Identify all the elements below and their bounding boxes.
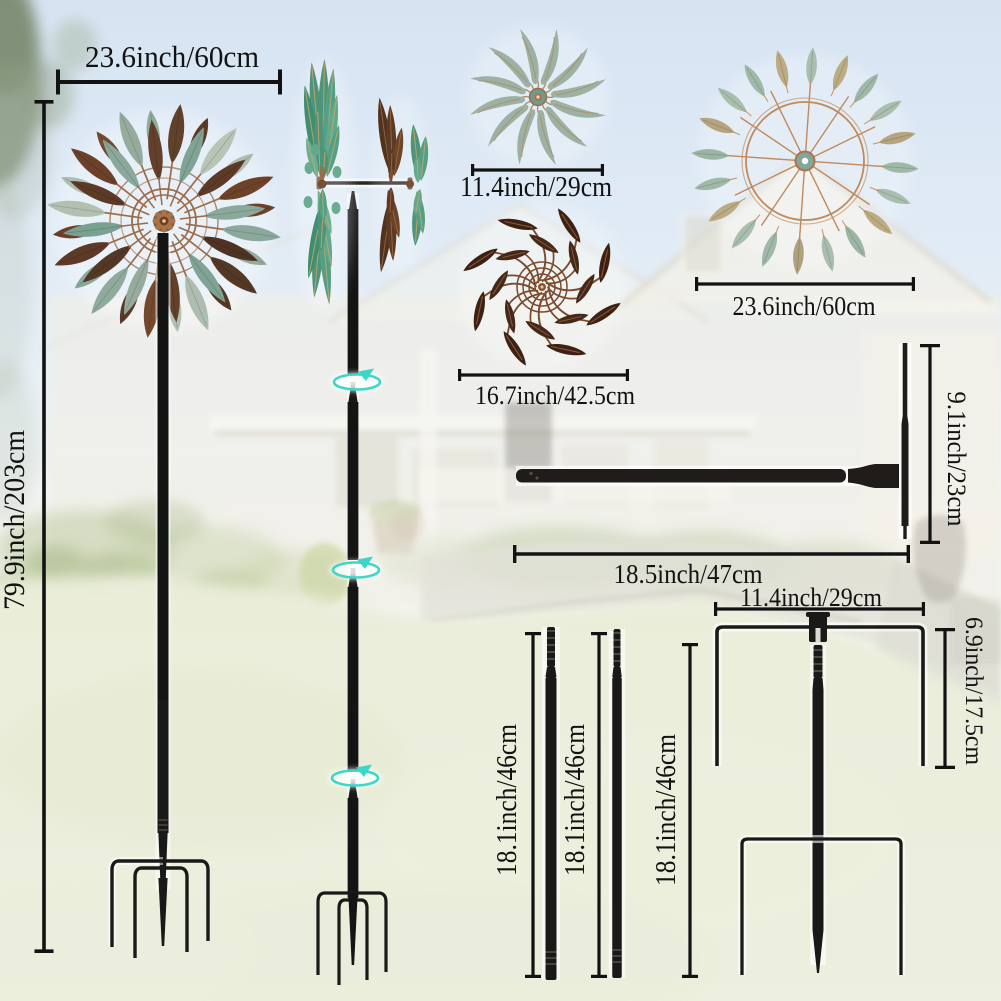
- svg-text:23.6inch/60cm: 23.6inch/60cm: [85, 39, 259, 74]
- svg-text:11.4inch/29cm: 11.4inch/29cm: [740, 583, 882, 612]
- svg-text:18.1inch/46cm: 18.1inch/46cm: [492, 724, 523, 876]
- svg-text:23.6inch/60cm: 23.6inch/60cm: [733, 291, 876, 321]
- svg-text:18.1inch/46cm: 18.1inch/46cm: [651, 734, 682, 886]
- svg-text:18.1inch/46cm: 18.1inch/46cm: [560, 724, 591, 876]
- svg-text:6.9inch/17.5cm: 6.9inch/17.5cm: [960, 617, 987, 766]
- svg-text:79.9inch/203cm: 79.9inch/203cm: [0, 430, 31, 610]
- svg-text:9.1inch/23cm: 9.1inch/23cm: [942, 392, 971, 527]
- svg-text:16.7inch/42.5cm: 16.7inch/42.5cm: [475, 381, 635, 410]
- svg-text:11.4inch/29cm: 11.4inch/29cm: [460, 172, 612, 203]
